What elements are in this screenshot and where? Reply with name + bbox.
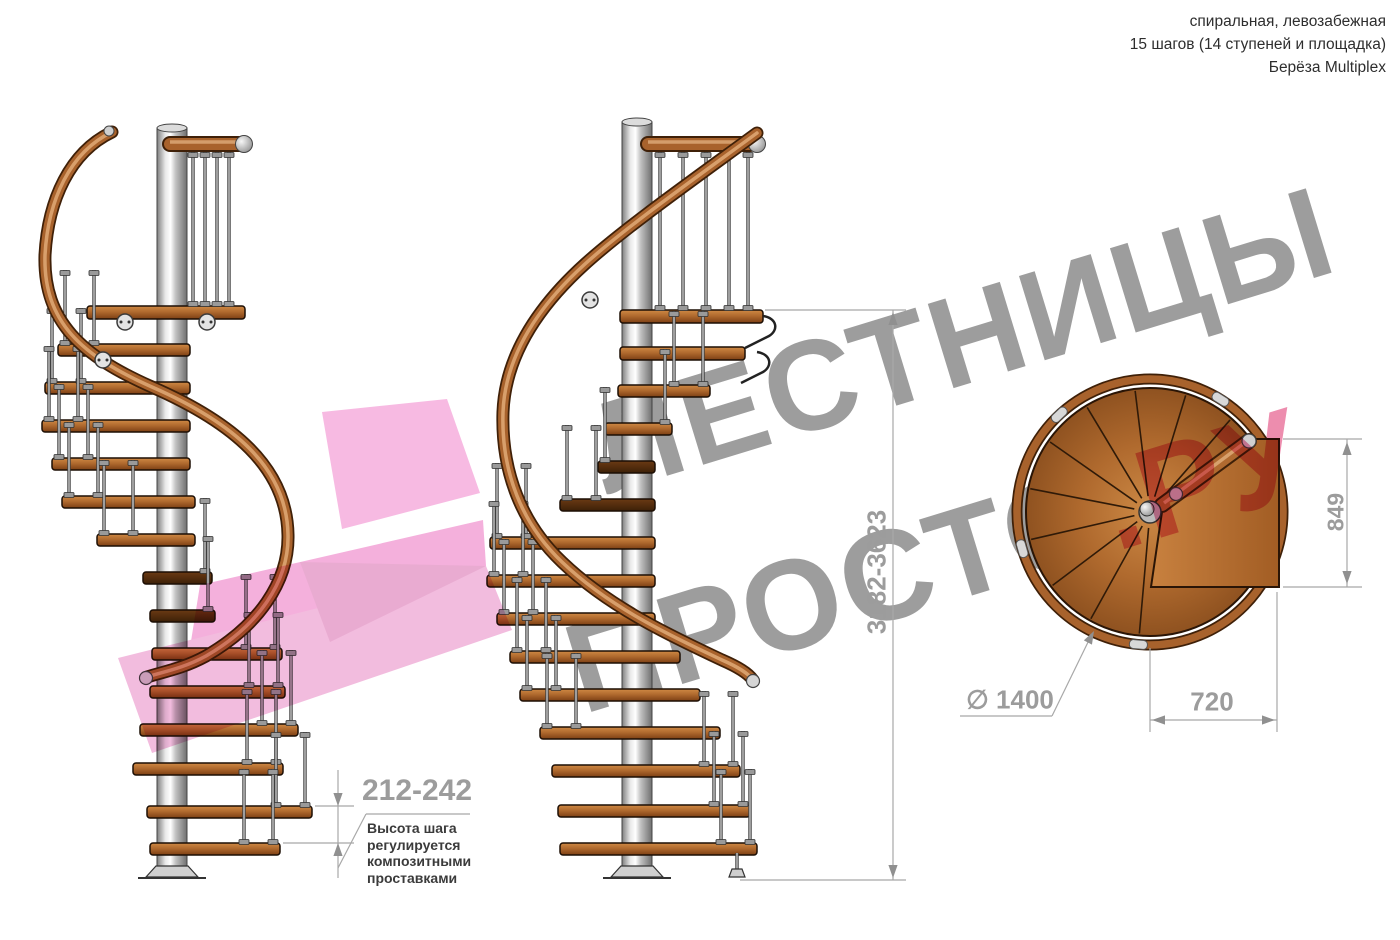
- step: [560, 499, 655, 511]
- ring-connector: [1129, 639, 1148, 650]
- staircase-material: Берёза Multiplex: [1130, 56, 1386, 79]
- column-base: [146, 866, 198, 877]
- platform-board: [620, 347, 745, 360]
- step: [490, 537, 655, 549]
- step: [150, 843, 280, 855]
- step: [52, 458, 190, 470]
- step: [552, 765, 740, 777]
- diameter-symbol: ∅: [966, 685, 989, 715]
- diameter-value: 1400: [996, 685, 1054, 715]
- rail-end-ball: [236, 136, 253, 153]
- staircase-type: спиральная, левозабежная: [1130, 10, 1386, 33]
- staircase-steps-info: 15 шагов (14 ступеней и площадка): [1130, 33, 1386, 56]
- step: [150, 686, 285, 698]
- title-block: спиральная, левозабежная 15 шагов (14 ст…: [1130, 10, 1386, 79]
- dim-platform-width-label: 720: [1190, 687, 1233, 718]
- dim-total-height-label: 3182-3623: [862, 510, 893, 634]
- column-base: [611, 866, 663, 877]
- side-elevation-view: [487, 118, 775, 878]
- step: [62, 496, 195, 508]
- step: [133, 763, 283, 775]
- platform-board: [87, 306, 245, 319]
- drawing-sheet: ЛЕСТНИЦЫ ПРОСТО.РУ ПРОСТО.РУ спиральная,…: [0, 0, 1400, 940]
- step-height-note: Высота шага регулируется композитными пр…: [367, 820, 471, 886]
- step: [97, 534, 195, 546]
- dim-diameter-label: ∅ 1400: [966, 685, 1054, 716]
- dim-platform-depth-label: 849: [1323, 493, 1350, 531]
- step: [147, 806, 312, 818]
- front-elevation-view: [42, 124, 312, 878]
- dim-step-height-label: 212-242: [362, 774, 472, 808]
- platform-board: [620, 310, 763, 323]
- step: [560, 843, 757, 855]
